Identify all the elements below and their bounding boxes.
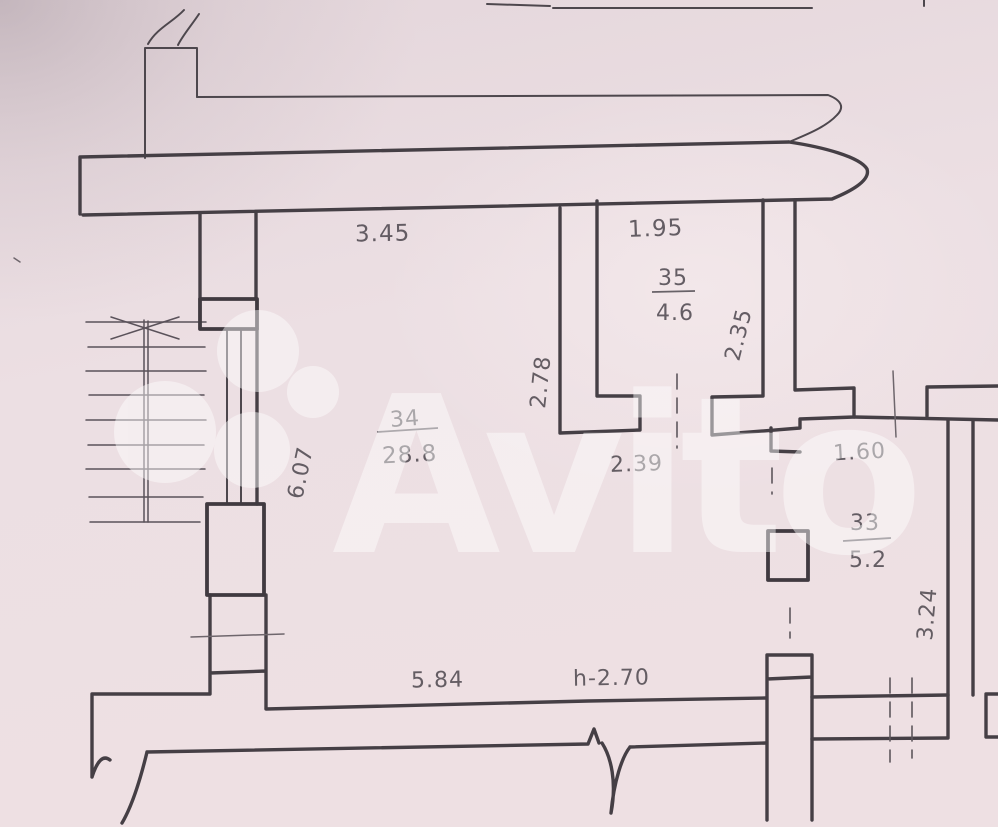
dim-room33-right: 3.24	[913, 587, 943, 642]
watermark-logo-circle	[214, 412, 290, 488]
room35-area: 4.6	[656, 301, 694, 326]
dim-room34-top: 3.45	[355, 221, 411, 248]
room35-fraction-line	[652, 291, 695, 292]
dim-room34-bottom: 5.84	[411, 668, 464, 694]
floor-plan-scan: 3.45 1.95 35 4.6 2.35 2.78 34 28.8 6.07 …	[0, 0, 998, 827]
watermark-brand-text: Avito	[332, 351, 915, 604]
watermark-logo-circle	[217, 310, 299, 392]
paper-corner-shadow	[0, 0, 420, 320]
watermark-logo-circle	[114, 381, 216, 483]
dim-room35-top: 1.95	[628, 215, 684, 243]
floor-plan-svg: 3.45 1.95 35 4.6 2.35 2.78 34 28.8 6.07 …	[0, 0, 998, 827]
room35-number: 35	[658, 266, 688, 291]
dim-ceiling-height: h-2.70	[573, 665, 650, 691]
